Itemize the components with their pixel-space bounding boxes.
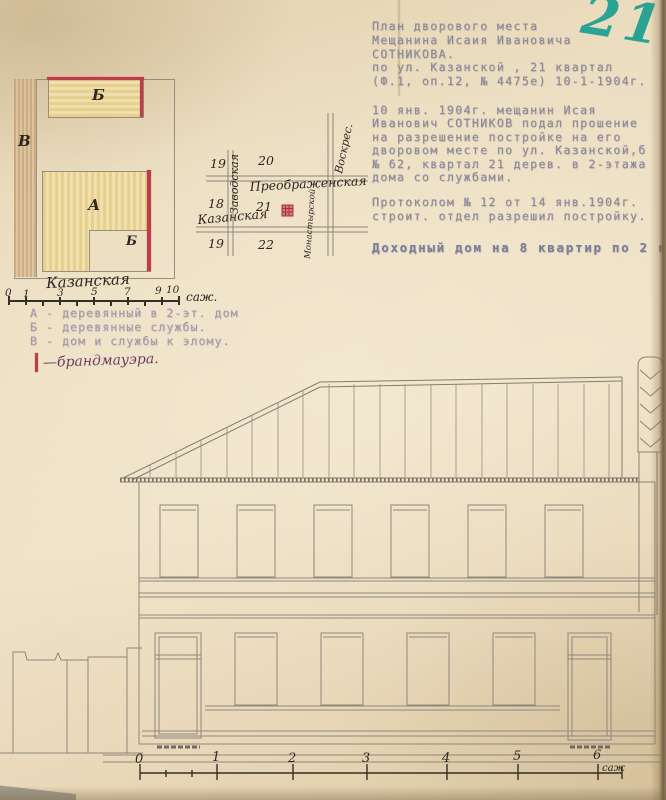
site-scale-unit: саж. (186, 290, 217, 304)
facade-scale-number: 5 (513, 749, 521, 764)
tick (178, 296, 180, 305)
note-protocol: Протоколом № 12 от 14 янв.1904г. строит.… (372, 196, 647, 224)
tick (25, 297, 27, 305)
facade-roof (123, 377, 622, 480)
tick (127, 297, 129, 305)
facade-scale-number: 3 (362, 751, 370, 766)
facade-left-door (155, 633, 201, 738)
firewall-red-line-top (47, 77, 144, 80)
facade-scale-bar: 0 1 2 3 4 5 6 саж (135, 748, 626, 780)
plan-building-small (89, 230, 151, 272)
note-protocol-line: Протоколом № 12 от 14 янв.1904г. (372, 196, 647, 210)
scanned-document-page: В Б А Б Казанская 0 1 3 5 7 9 10 саж. А … (0, 0, 666, 800)
tick (161, 297, 163, 305)
note-header-line: (Ф.1, оп.12, № 4475е) 10-1-1904г. (372, 75, 647, 89)
block-number: 20 (257, 153, 274, 168)
street-name-voskres: Воскрес. (332, 122, 355, 175)
block-number: 21 (255, 199, 272, 214)
note-body-line: дворовом месте по ул. Казанской,б (372, 144, 647, 157)
note-body-line: дома со службами. (372, 171, 647, 184)
note-body-line: 10 янв. 1904г. мещанин Исая (372, 104, 647, 117)
block-number: 22 (257, 237, 274, 252)
page-edge-bottom (0, 786, 666, 800)
plan-label-b: Б (92, 86, 105, 104)
facade-scale-unit: саж (602, 763, 626, 774)
block-number: 19 (210, 156, 226, 171)
facade-ground-windows (235, 633, 535, 705)
street-grid-sketch: Заводская Воскрес. Монастырской Преображ… (192, 92, 370, 264)
site-scale-number: 9 (155, 285, 162, 297)
facade-second-floor-windows (160, 505, 583, 577)
plot-location-marker (282, 205, 293, 216)
facade-scale-ticks (140, 764, 622, 780)
legend-item-v: В - дом и службы к элому. (30, 334, 231, 348)
facade-walls (139, 482, 655, 744)
facade-frieze-boards (150, 384, 609, 477)
tick (8, 296, 10, 305)
firewall-red-line-a-right (147, 170, 151, 271)
note-body-line: Иванович СОТНИКОВ подал прошение (372, 117, 647, 130)
facade-scale-number: 1 (212, 750, 220, 765)
legend-item-b: Б - деревянные службы. (30, 320, 207, 334)
site-scale-number: 10 (166, 284, 179, 296)
street-name-monastyrskaya: Монастырской (303, 189, 318, 261)
legend-item-a: А - деревянный в 2-эт. дом (30, 306, 239, 320)
facade-scale-number: 6 (593, 748, 601, 763)
plan-label-a: А (88, 196, 100, 214)
facade-eave-cornice (120, 478, 655, 482)
facade-scale-number: 0 (135, 752, 143, 767)
facade-scale-numbers: 0 1 2 3 4 5 6 саж (135, 748, 626, 774)
facade-right-door (568, 633, 611, 740)
block-number: 18 (208, 196, 224, 211)
tick (93, 297, 95, 305)
block-number: 19 (208, 236, 224, 251)
plan-label-strip: В (18, 132, 31, 150)
note-body: 10 янв. 1904г. мещанин Исая Иванович СОТ… (372, 104, 647, 184)
facade-elevation-drawing: 0 1 2 3 4 5 6 саж (0, 350, 666, 800)
firewall-red-line-b-right (140, 79, 143, 117)
facade-scale-number: 4 (441, 751, 450, 766)
note-body-line: № 62, квартал 21 дерев. в 2-этажа (372, 158, 647, 171)
note-summary: Доходный дом на 8 квартир по 2 км (372, 241, 666, 255)
facade-interfloor-cornice (139, 578, 655, 618)
page-edge-right (650, 0, 666, 800)
plan-building-v-strip (14, 79, 37, 277)
tick (59, 297, 61, 305)
fence-outline (0, 648, 143, 753)
plan-label-small: Б (126, 234, 137, 249)
note-protocol-line: строит. отдел разрешил постройку. (372, 210, 647, 224)
street-name-zavodskaya: Заводская (228, 154, 241, 214)
facade-scale-number: 2 (287, 751, 296, 766)
